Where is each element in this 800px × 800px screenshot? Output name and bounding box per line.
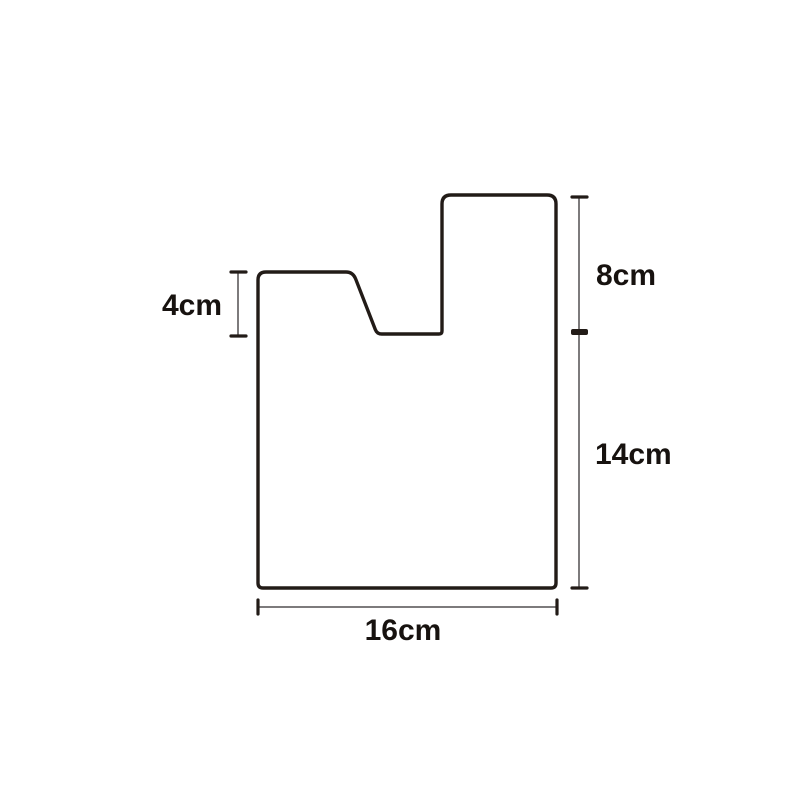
shape-svg — [0, 0, 800, 800]
dim-label-14cm: 14cm — [595, 439, 672, 471]
dim-label-4cm: 4cm — [132, 290, 222, 322]
dim-label-8cm: 8cm — [596, 260, 656, 292]
diagram-canvas: 4cm 8cm 14cm 16cm — [0, 0, 800, 800]
tick-right-middle — [571, 329, 588, 335]
notched-shape-outline — [258, 195, 556, 588]
dim-label-16cm: 16cm — [333, 615, 473, 647]
